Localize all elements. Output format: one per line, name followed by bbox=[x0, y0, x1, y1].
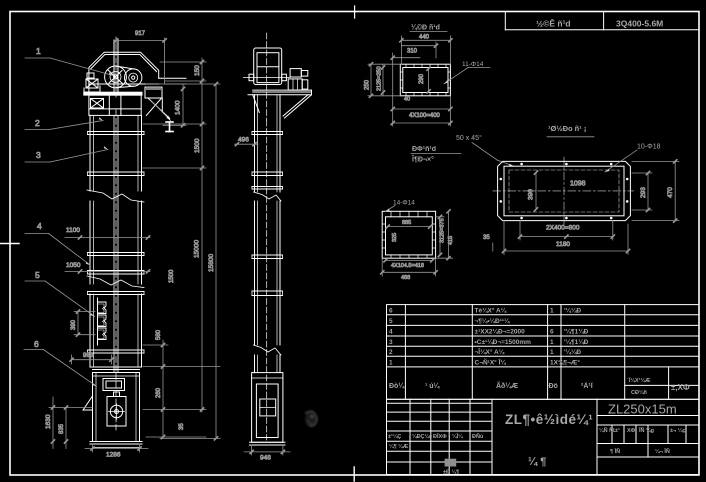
svg-text:¹Ø½Ðo ñ¹ ¡: ¹Ø½Ðo ñ¹ ¡ bbox=[548, 124, 586, 133]
svg-text:¬¶¼•¼Ð¹¹¼: ¬¶¼•¼Ð¹¹¼ bbox=[475, 317, 511, 325]
svg-text:15800: 15800 bbox=[208, 254, 215, 272]
svg-text:ÐΦ¹ñ¹d: ÐΦ¹ñ¹d bbox=[412, 146, 436, 153]
svg-text:3Q400-5.6M: 3Q400-5.6M bbox=[616, 19, 663, 29]
svg-text:ZL¶•ê½ìdé¼¹: ZL¶•ê½ìdé¼¹ bbox=[505, 412, 593, 427]
svg-text:¼ ¶: ¼ ¶ bbox=[528, 456, 546, 468]
svg-text:1: 1 bbox=[389, 360, 393, 367]
svg-text:1: 1 bbox=[36, 46, 41, 56]
svg-text:'¼¶1¼Ð: '¼¶1¼Ð bbox=[564, 327, 589, 335]
svg-text:±,XΦ: ±,XΦ bbox=[671, 383, 690, 392]
svg-text:±¬ ¼ç: ±¬ ¼ç bbox=[670, 427, 685, 434]
svg-text:1630: 1630 bbox=[45, 414, 52, 429]
svg-text:1: 1 bbox=[550, 339, 554, 346]
svg-text:260: 260 bbox=[156, 387, 162, 398]
svg-text:988: 988 bbox=[83, 353, 94, 359]
svg-text:¼¬ ÎÑ: ¼¬ ÎÑ bbox=[655, 447, 670, 455]
svg-text:Ãð¼Æ: Ãð¼Æ bbox=[496, 381, 518, 390]
svg-text:150: 150 bbox=[194, 65, 201, 76]
svg-text:1: 1 bbox=[550, 308, 554, 315]
svg-text:1180: 1180 bbox=[556, 241, 570, 248]
svg-text:1100: 1100 bbox=[66, 227, 80, 234]
svg-text:ZL250x15m: ZL250x15m bbox=[608, 402, 677, 417]
svg-text:488: 488 bbox=[401, 275, 410, 281]
svg-text:11-Φ14: 11-Φ14 bbox=[462, 61, 484, 68]
svg-text:390: 390 bbox=[71, 319, 77, 330]
svg-text:3125=375: 3125=375 bbox=[440, 218, 446, 243]
svg-text:¹ ú¼: ¹ ú¼ bbox=[425, 382, 441, 390]
svg-text:5: 5 bbox=[389, 318, 393, 325]
svg-text:10-Φ18: 10-Φ18 bbox=[637, 144, 661, 151]
svg-text:1286: 1286 bbox=[106, 452, 121, 459]
svg-text:'¼¼Ð: '¼¼Ð bbox=[564, 307, 581, 315]
svg-text:2125=250: 2125=250 bbox=[377, 66, 383, 91]
svg-text:35: 35 bbox=[483, 235, 490, 241]
svg-text:6: 6 bbox=[34, 339, 39, 349]
svg-text:Î¶Ð¬×°: Î¶Ð¬×° bbox=[411, 155, 434, 164]
svg-text:CÐ¼ñ: CÐ¼ñ bbox=[631, 389, 648, 396]
svg-text:Ðô: Ðô bbox=[549, 383, 558, 390]
svg-text:14-Φ14: 14-Φ14 bbox=[393, 200, 415, 207]
svg-text:1X¼¶¬Æ°: 1X¼¶¬Æ° bbox=[550, 359, 580, 367]
svg-text:±Ð ¼¶: ±Ð ¼¶ bbox=[443, 469, 459, 476]
svg-text:ÎÑ ¼g: ÎÑ ¼g bbox=[638, 426, 654, 434]
svg-text:¼¶ ¼Æ: ¼¶ ¼Æ bbox=[389, 443, 409, 450]
svg-text:1500: 1500 bbox=[169, 269, 175, 283]
svg-text:310: 310 bbox=[407, 49, 418, 55]
svg-text:1050: 1050 bbox=[66, 262, 81, 269]
svg-text:580: 580 bbox=[156, 329, 162, 340]
svg-text:±¹¼Ç: ±¹¼Ç bbox=[388, 433, 401, 440]
svg-text:250: 250 bbox=[365, 79, 371, 90]
svg-text:±¹XX2¼Ð¬=2000: ±¹XX2¼Ð¬=2000 bbox=[475, 327, 526, 335]
svg-text:470: 470 bbox=[667, 187, 674, 198]
svg-text:15000: 15000 bbox=[194, 240, 201, 258]
svg-text:'¼¶1¼Ð: '¼¶1¼Ð bbox=[564, 338, 589, 346]
svg-text:¼©Ð ñ¹d: ¼©Ð ñ¹d bbox=[411, 24, 440, 32]
svg-text:35: 35 bbox=[179, 423, 185, 430]
svg-text:5: 5 bbox=[35, 270, 40, 280]
svg-text:917: 917 bbox=[135, 31, 146, 37]
svg-text:40: 40 bbox=[404, 97, 410, 103]
svg-text:1: 1 bbox=[550, 349, 554, 356]
svg-text:½©Ê ñ¹d: ½©Ê ñ¹d bbox=[536, 18, 571, 29]
svg-text:XΦ: XΦ bbox=[627, 428, 636, 434]
svg-text:²Ä¹Ï: ²Ä¹Ï bbox=[581, 382, 594, 390]
svg-text:1098: 1098 bbox=[570, 181, 586, 188]
svg-text:390: 390 bbox=[528, 189, 535, 200]
svg-text:835: 835 bbox=[59, 423, 65, 434]
svg-text:290: 290 bbox=[419, 73, 425, 84]
svg-text:´Ï¼X¹¼Æ: ´Ï¼X¹¼Æ bbox=[627, 377, 651, 384]
svg-text:4X104.5=418: 4X104.5=418 bbox=[391, 263, 424, 269]
svg-text:2X400=800: 2X400=800 bbox=[546, 225, 580, 232]
svg-text:1400: 1400 bbox=[175, 100, 182, 115]
svg-text:3: 3 bbox=[36, 150, 41, 160]
svg-text:325: 325 bbox=[392, 233, 398, 242]
svg-text:ÐÎXΦ: ÐÎXΦ bbox=[433, 432, 447, 440]
svg-text:50 x 45°: 50 x 45° bbox=[456, 134, 482, 142]
svg-text:¼Î¼: ¼Î¼ bbox=[452, 432, 463, 440]
svg-text:496: 496 bbox=[238, 137, 249, 144]
svg-text:440: 440 bbox=[419, 35, 430, 41]
svg-text:•C±¹¼Ð¬=1500mm: •C±¹¼Ð¬=1500mm bbox=[475, 338, 532, 346]
svg-text:415: 415 bbox=[448, 236, 454, 245]
svg-text:¼ÐÇ¼è: ¼ÐÇ¼è bbox=[412, 433, 432, 440]
svg-text:6: 6 bbox=[550, 328, 554, 335]
svg-text:293: 293 bbox=[640, 187, 647, 198]
svg-text:6: 6 bbox=[389, 308, 393, 315]
svg-text:ÐÑù: ÐÑù bbox=[472, 433, 483, 440]
svg-text:Ðò¼: Ðò¼ bbox=[389, 382, 405, 390]
svg-text:2: 2 bbox=[389, 349, 393, 356]
svg-text:Τè¼X° A¼: Τè¼X° A¼ bbox=[475, 307, 507, 315]
svg-text:948: 948 bbox=[260, 455, 271, 462]
svg-text:¬Î¼X° A¼: ¬Î¼X° A¼ bbox=[475, 347, 505, 356]
svg-text:3: 3 bbox=[389, 339, 393, 346]
svg-text:4: 4 bbox=[37, 221, 42, 231]
svg-text:2: 2 bbox=[35, 118, 40, 128]
svg-text:1500: 1500 bbox=[194, 138, 201, 153]
svg-text:4X100=400: 4X100=400 bbox=[409, 113, 441, 119]
svg-text:¶ ÎÑ: ¶ ÎÑ bbox=[610, 447, 620, 455]
svg-text:C¬Ñ¹X° Î¼: C¬Ñ¹X° Î¼ bbox=[475, 358, 507, 367]
svg-text:4: 4 bbox=[389, 328, 393, 335]
svg-text:±¹: ±¹ bbox=[615, 427, 620, 434]
svg-text:'¼¼Ð: '¼¼Ð bbox=[564, 348, 581, 356]
svg-text:885: 885 bbox=[402, 220, 411, 226]
